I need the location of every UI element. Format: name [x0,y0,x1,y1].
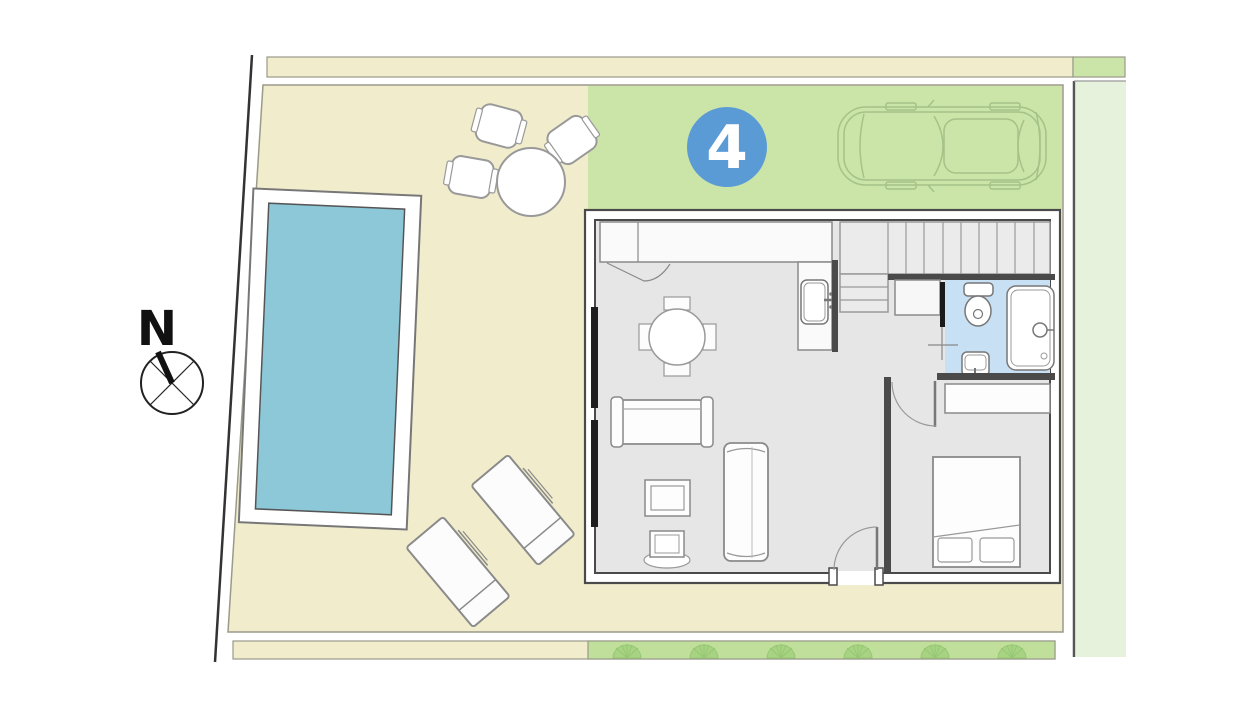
sliding-door [940,282,945,327]
swimming-pool [239,188,421,529]
bathroom-wall [937,373,1055,380]
floor-plan-canvas: N [0,0,1240,720]
bathtub-icon [1007,286,1054,370]
top-landscaping-strip [267,57,1125,77]
understair-closet [895,280,940,315]
pillow [938,538,972,562]
pillow [980,538,1014,562]
toilet-icon [964,283,993,326]
stair-lower-flight [840,274,888,312]
bottom-strip-green [588,641,1055,659]
floor-plan-svg: N [0,0,1240,720]
window-glazing [591,307,598,408]
tv-unit [644,531,690,568]
unit-number-label: 4 [706,113,748,183]
dining-chair [664,297,690,310]
window-glazing [591,420,598,527]
door-jamb [875,568,883,585]
coffee-table [645,480,690,516]
top-strip-green [1073,57,1125,77]
outdoor-round-table [497,148,565,216]
bed [933,457,1020,567]
kitchen-counter [600,222,832,262]
compass-rose: N [137,301,203,414]
bottom-landscaping-strip [233,641,1055,659]
door-jamb [829,568,837,585]
wardrobe [945,384,1050,413]
top-strip-yard [267,57,1073,77]
kitchen-wall [832,260,838,352]
stair-upper-flight [840,222,1050,274]
pool-water [255,203,404,515]
unit-number-badge: 4 [687,107,767,187]
bedroom-wall [884,377,891,573]
understair-wall [888,274,1055,280]
sofa [611,397,713,447]
house [585,210,1060,585]
chaise [724,443,768,561]
dining-table [649,309,705,365]
bathroom [928,280,1055,380]
bathroom-sink-icon [962,352,989,376]
door-opening [836,571,876,585]
compass-north-label: N [137,301,177,357]
neighbor-green-area [1076,81,1126,657]
neighbor-plot-strip [1074,81,1126,657]
driveway [588,86,1062,209]
